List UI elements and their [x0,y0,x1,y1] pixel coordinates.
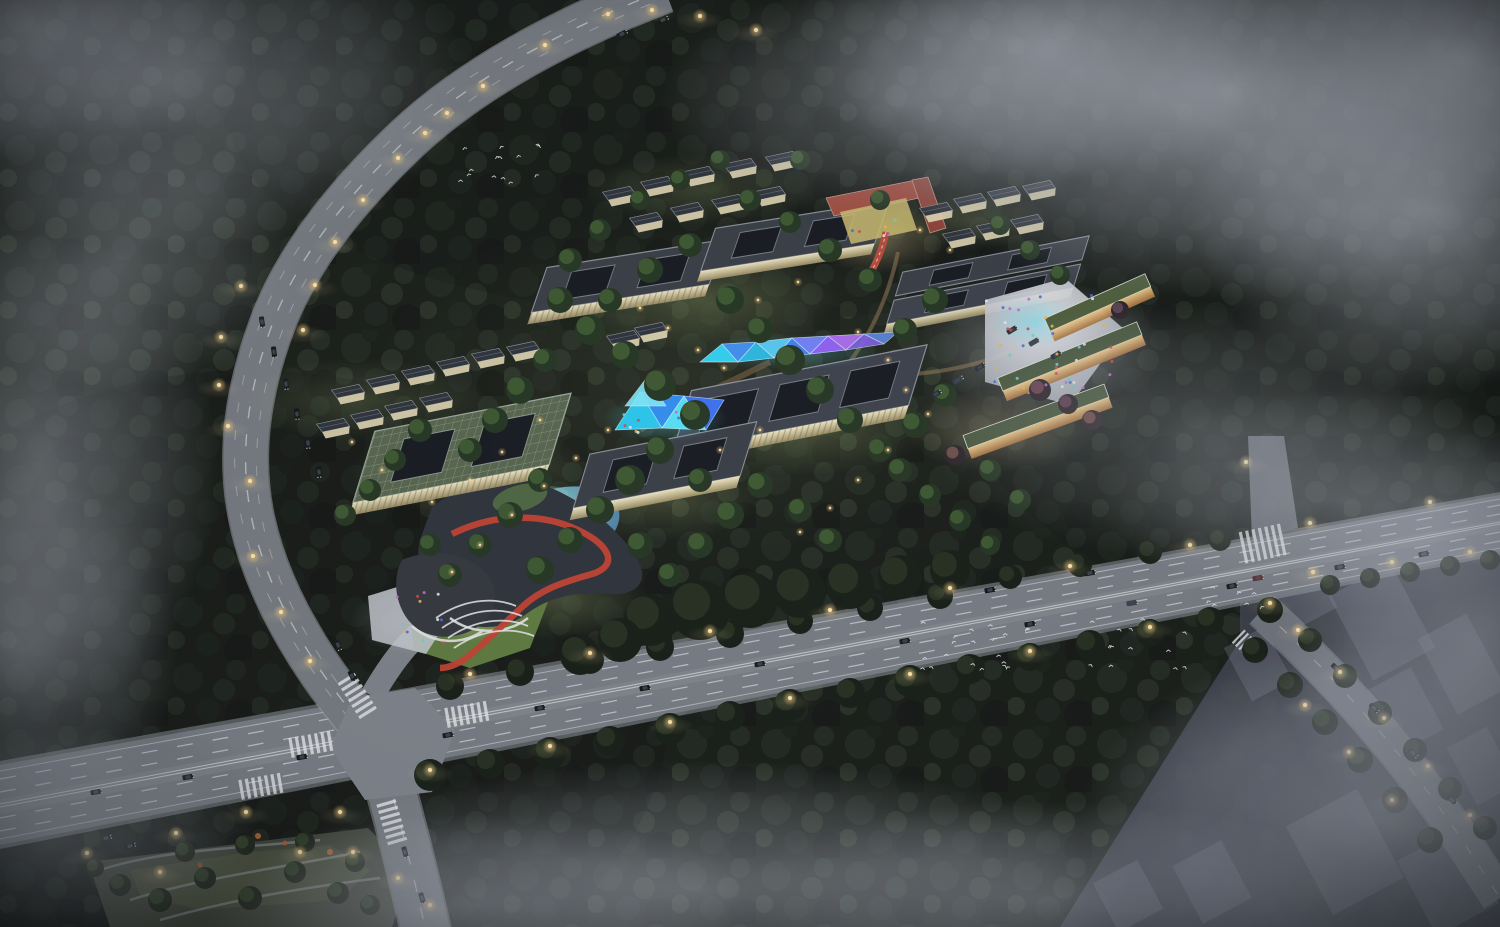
aerial-night-rendering [0,0,1500,927]
scene-canvas [0,0,1500,927]
vignette [0,0,1500,927]
